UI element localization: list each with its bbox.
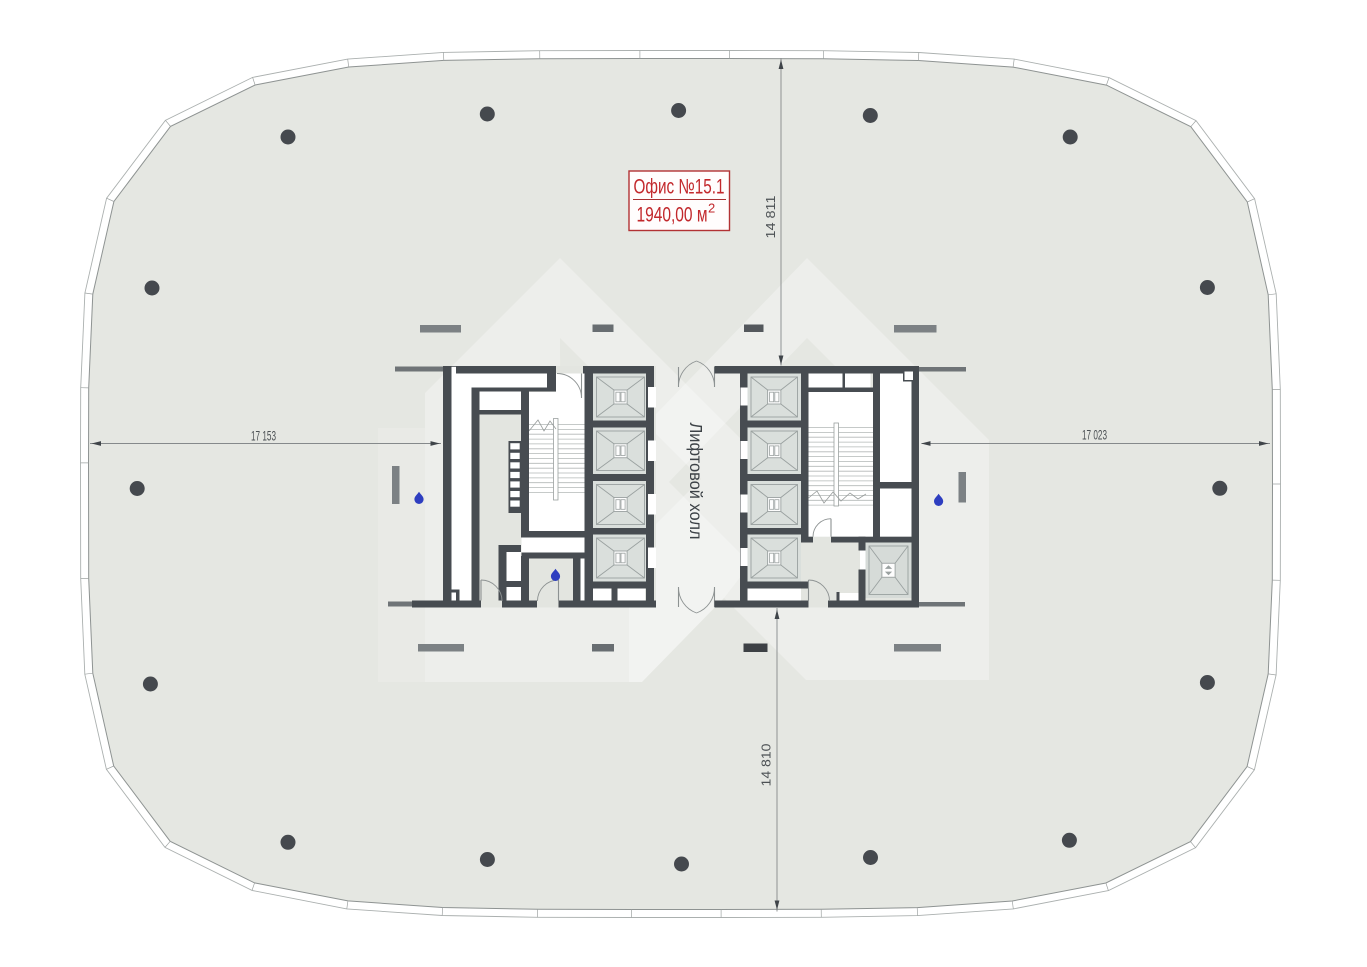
svg-text:Лифтовой холл: Лифтовой холл — [686, 423, 706, 540]
svg-text:2: 2 — [708, 201, 715, 216]
svg-text:14 810: 14 810 — [759, 744, 774, 787]
svg-text:14 811: 14 811 — [763, 196, 778, 239]
svg-text:17 153: 17 153 — [251, 428, 276, 444]
svg-text:17 023: 17 023 — [1082, 427, 1107, 443]
svg-text:1940,00 м: 1940,00 м — [637, 204, 708, 227]
svg-text:Офис №15.1: Офис №15.1 — [634, 176, 725, 199]
